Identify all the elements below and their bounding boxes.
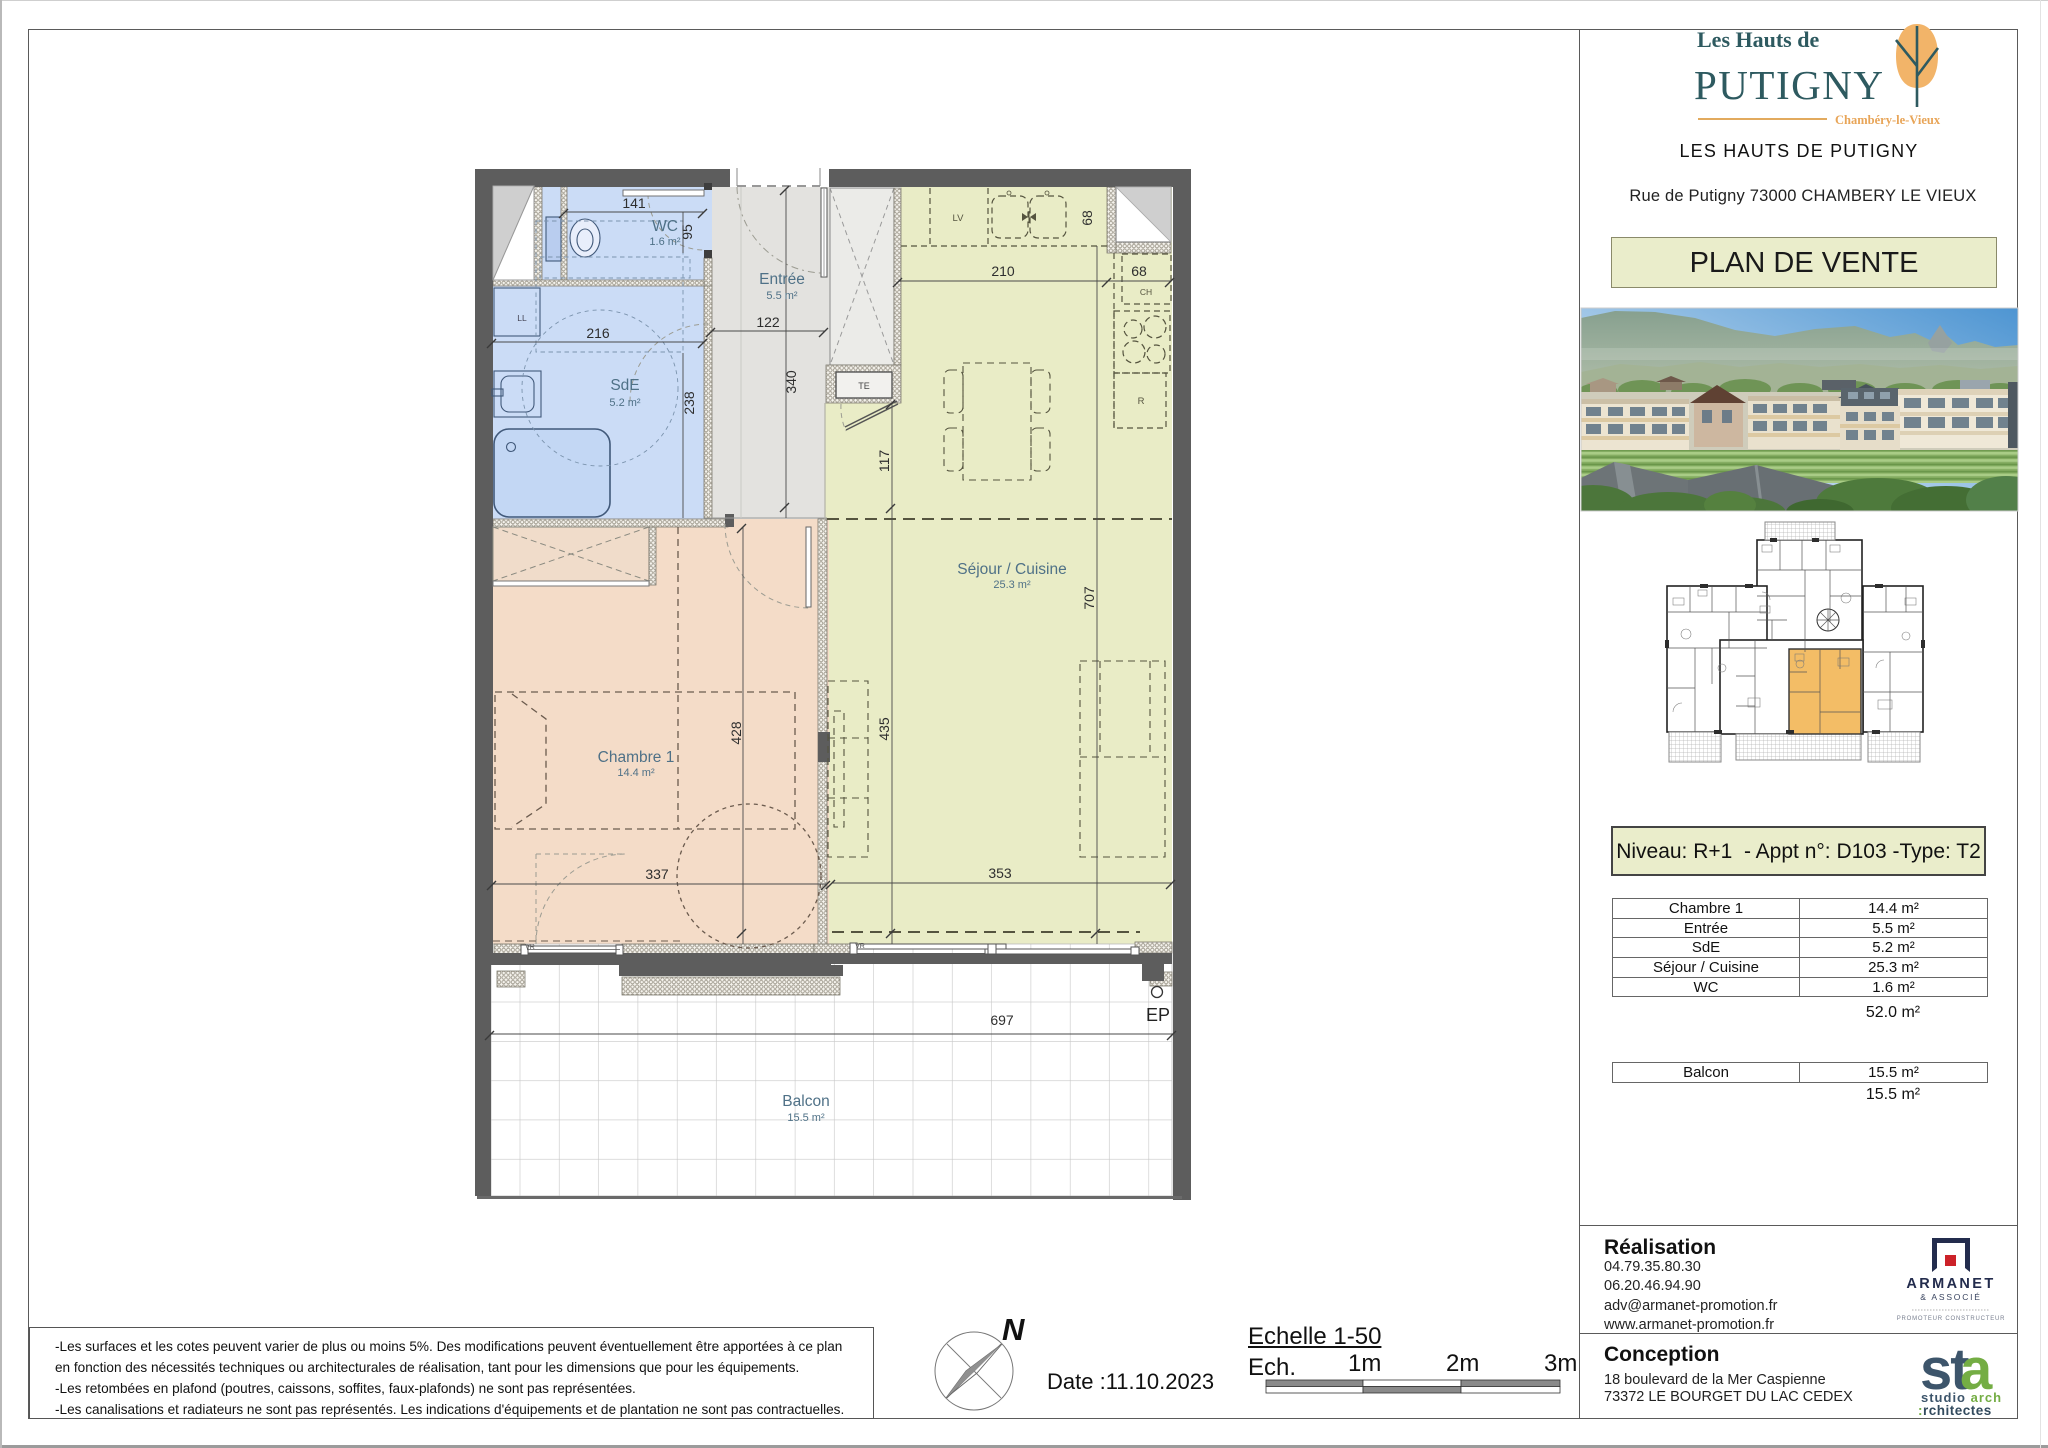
svg-text:435: 435	[876, 717, 892, 741]
svg-text:117: 117	[876, 450, 892, 473]
svg-text:EP: EP	[1146, 1005, 1170, 1025]
svg-text:PROMOTEUR CONSTRUCTEUR: PROMOTEUR CONSTRUCTEUR	[1897, 1316, 2006, 1322]
svg-text:SdE: SdE	[610, 377, 639, 394]
svg-text:707: 707	[1081, 586, 1097, 610]
svg-text:N: N	[1002, 1312, 1025, 1347]
svg-text:428: 428	[728, 721, 744, 745]
svg-text:1.6 m²: 1.6 m²	[649, 236, 681, 248]
svg-text:Balcon: Balcon	[782, 1093, 829, 1110]
svg-text:216: 216	[586, 325, 610, 341]
svg-text:VR: VR	[855, 943, 865, 950]
svg-text:TE: TE	[858, 381, 870, 391]
svg-text:LL: LL	[517, 313, 527, 323]
svg-text:238: 238	[681, 391, 697, 415]
svg-text:5.2 m²: 5.2 m²	[609, 397, 641, 409]
svg-text:25.3 m²: 25.3 m²	[993, 579, 1031, 591]
svg-text:ARMANET: ARMANET	[1906, 1276, 1995, 1292]
svg-text:& ASSOCIÉ: & ASSOCIÉ	[1920, 1292, 1982, 1302]
svg-text::rchitectes: :rchitectes	[1918, 1403, 1992, 1418]
svg-text:Entrée: Entrée	[759, 271, 805, 288]
svg-text:697: 697	[990, 1012, 1014, 1028]
svg-text:141: 141	[622, 195, 646, 211]
svg-text:CH: CH	[1140, 287, 1152, 297]
svg-text:340: 340	[783, 370, 799, 394]
svg-text:337: 337	[645, 866, 669, 882]
svg-text:14.4 m²: 14.4 m²	[617, 767, 655, 779]
svg-text:Chambéry-le-Vieux: Chambéry-le-Vieux	[1835, 113, 1941, 127]
svg-text:122: 122	[756, 314, 780, 330]
svg-text:Séjour / Cuisine: Séjour / Cuisine	[957, 561, 1066, 578]
svg-text:210: 210	[991, 263, 1015, 279]
svg-text:353: 353	[988, 865, 1012, 881]
svg-text:R: R	[1138, 396, 1145, 407]
svg-text:LV: LV	[953, 213, 965, 224]
svg-text:VR: VR	[525, 944, 535, 951]
svg-text:PUTIGNY: PUTIGNY	[1694, 62, 1884, 108]
svg-text:95: 95	[679, 224, 695, 240]
svg-text:WC: WC	[652, 218, 678, 235]
svg-text:5.5 m²: 5.5 m²	[766, 290, 798, 302]
svg-text:15.5 m²: 15.5 m²	[787, 1112, 825, 1124]
svg-text:Chambre 1: Chambre 1	[598, 749, 675, 766]
svg-text:Les Hauts de: Les Hauts de	[1697, 27, 1819, 52]
svg-text:68: 68	[1079, 210, 1095, 226]
svg-text:68: 68	[1131, 263, 1147, 279]
